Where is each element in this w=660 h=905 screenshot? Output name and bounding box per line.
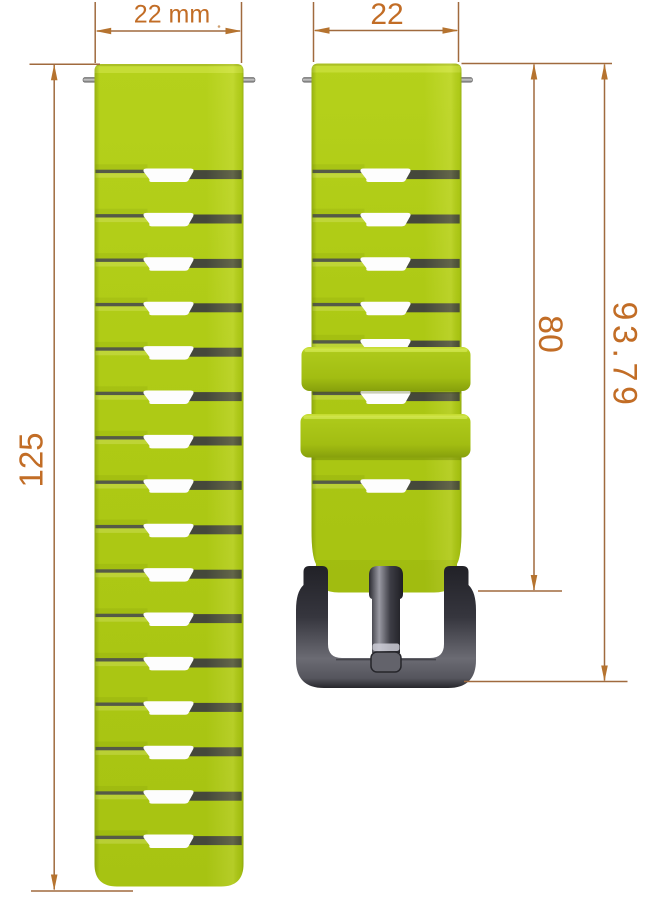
svg-text:22 mm: 22 mm xyxy=(134,1,210,29)
svg-text:80: 80 xyxy=(531,315,569,353)
svg-text:93.79: 93.79 xyxy=(606,301,644,409)
svg-text:125: 125 xyxy=(13,432,50,487)
svg-text:22: 22 xyxy=(370,0,403,31)
